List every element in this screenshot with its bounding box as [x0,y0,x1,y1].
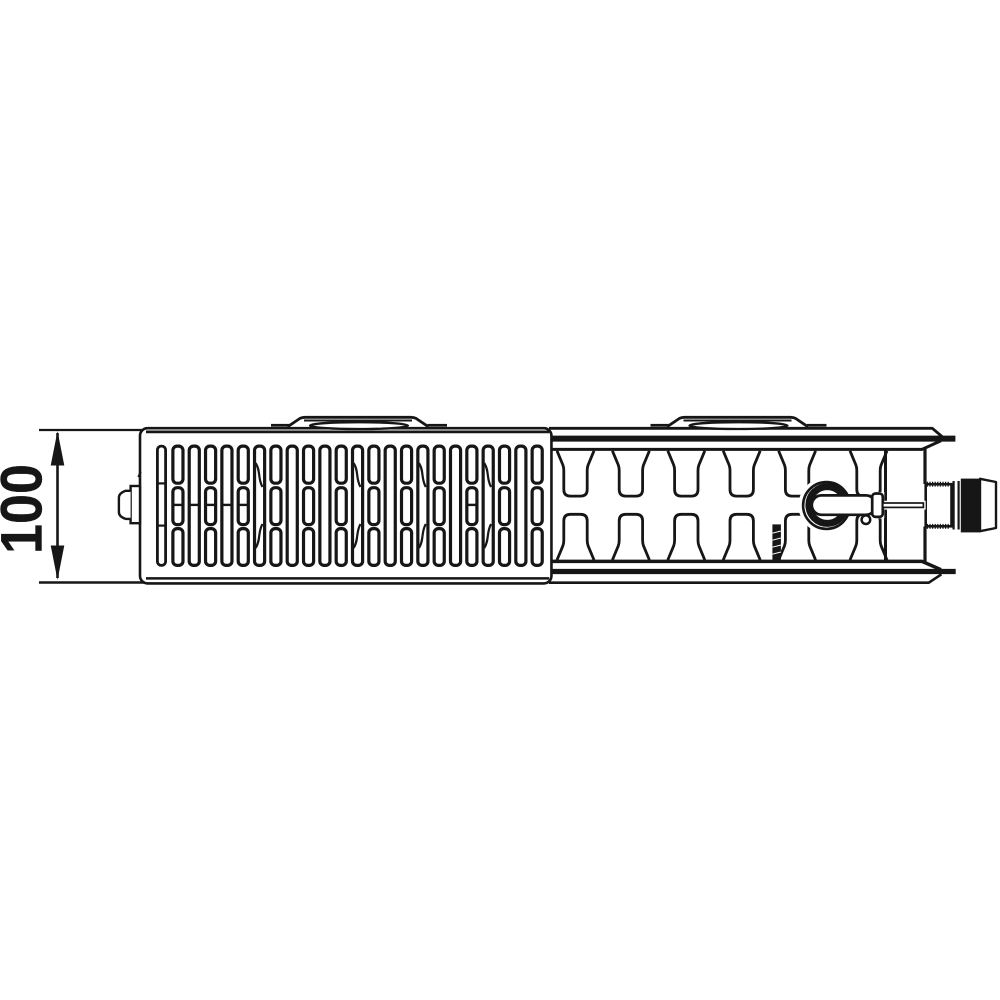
svg-text:100: 100 [0,464,54,554]
